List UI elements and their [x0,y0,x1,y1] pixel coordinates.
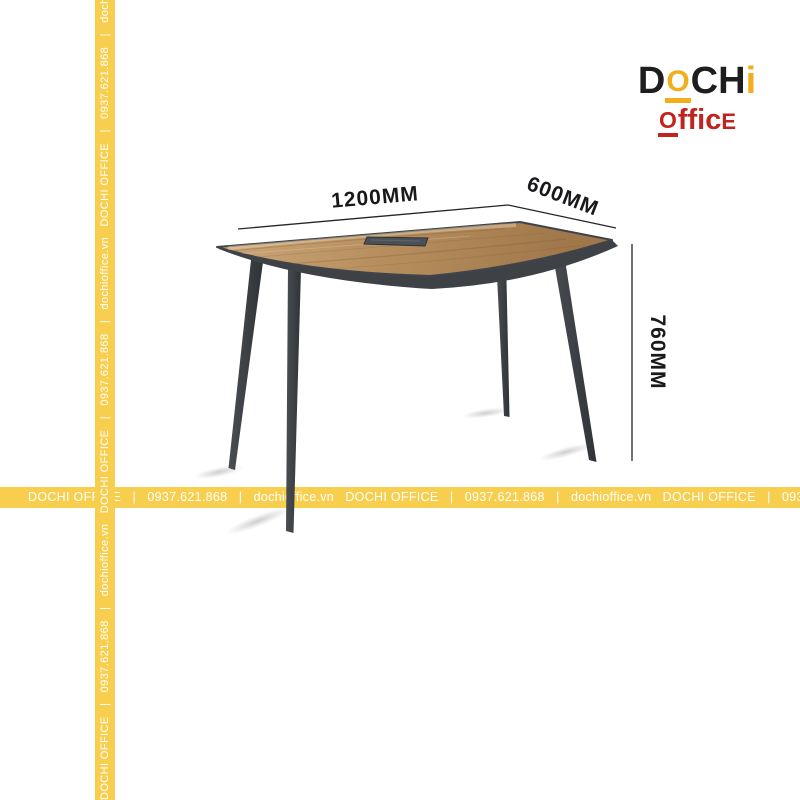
logo-letters: ffic [678,104,722,136]
logo-letter: C [691,60,718,102]
logo-letter-o-underlined: O [658,109,678,137]
dimension-label-depth: 600MM [524,172,602,220]
logo-wordmark-dochi: DOCHi [606,60,788,103]
table-legs [229,245,597,533]
product-page: { "logo": { "line1": { "d": "D", "o": "O… [0,0,800,800]
floor-shadow [193,462,246,482]
brand-logo: DOCHi OfficE [606,60,788,137]
dimension-label-height: 760MM [646,314,669,389]
logo-letter: i [746,60,757,102]
cable-grommet [364,237,428,246]
table-leg-front-left [286,267,301,533]
logo-wordmark-office: OfficE [606,105,788,137]
dimension-label-width: 1200MM [330,182,419,213]
logo-letter-o-underlined: O [665,67,690,103]
logo-letter: D [638,60,665,102]
table-leg-back-left [229,260,264,470]
floor-shadows [193,405,596,539]
table-leg-front-right [551,245,597,462]
floor-shadow [222,502,294,539]
logo-letter: E [721,109,736,134]
logo-letter: H [718,60,745,102]
